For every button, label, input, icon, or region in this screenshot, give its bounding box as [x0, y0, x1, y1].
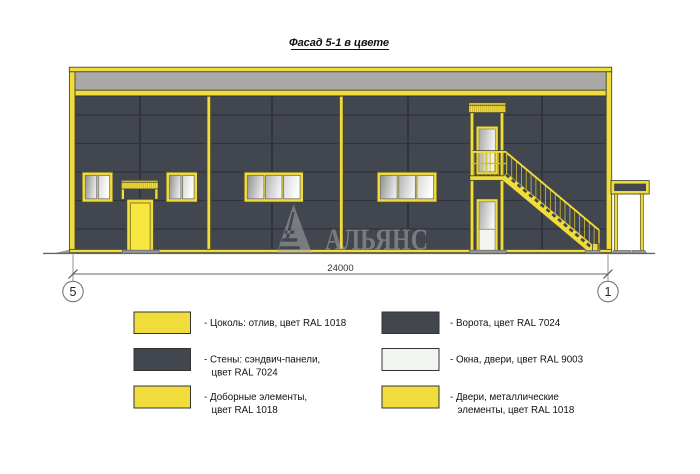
svg-text:Фасад 5-1 в цвете: Фасад 5-1 в цвете — [289, 37, 389, 49]
svg-text:- Окна, двери, цвет RAL 9003: - Окна, двери, цвет RAL 9003 — [450, 355, 584, 366]
svg-text:АЛЬЯНС: АЛЬЯНС — [325, 222, 428, 257]
svg-text:цвет RAL 7024: цвет RAL 7024 — [212, 368, 279, 379]
svg-text:- Доборные элементы,: - Доборные элементы, — [204, 392, 307, 403]
svg-text:- Цоколь: отлив, цвет RAL 1018: - Цоколь: отлив, цвет RAL 1018 — [204, 318, 347, 329]
svg-text:- Двери, металлические: - Двери, металлические — [450, 392, 559, 403]
svg-text:цвет RAL 1018: цвет RAL 1018 — [212, 405, 279, 416]
svg-text:5: 5 — [70, 285, 77, 299]
svg-text:1: 1 — [605, 285, 612, 299]
svg-text:- Стены: сэндвич-панели,: - Стены: сэндвич-панели, — [204, 355, 320, 366]
svg-text:24000: 24000 — [327, 263, 353, 274]
svg-text:элементы, цвет RAL 1018: элементы, цвет RAL 1018 — [458, 405, 575, 416]
svg-text:- Ворота, цвет RAL 7024: - Ворота, цвет RAL 7024 — [450, 318, 561, 329]
